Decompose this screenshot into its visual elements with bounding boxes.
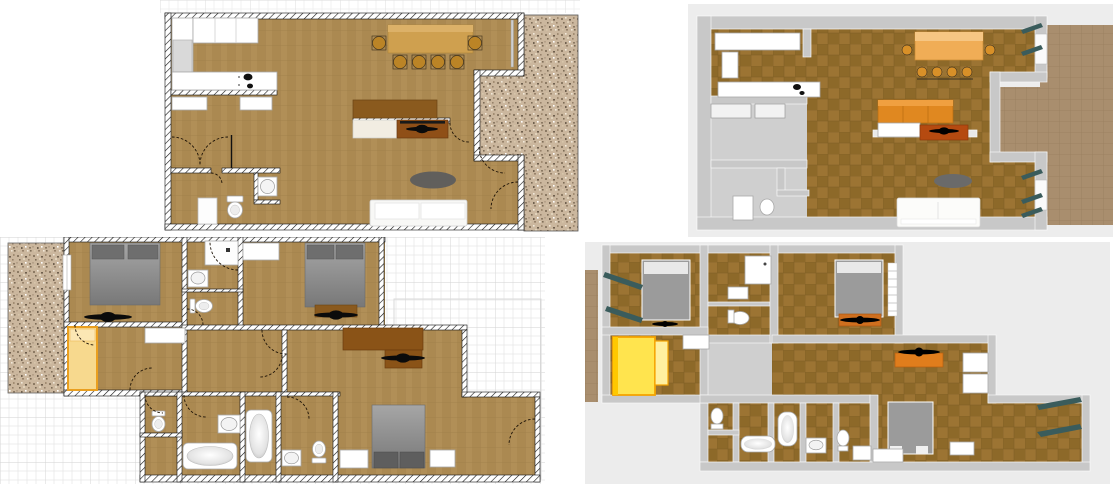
sofa bbox=[897, 198, 980, 227]
footboard bbox=[916, 446, 928, 454]
panel-ground-floor-3d bbox=[685, 0, 1113, 240]
floor-plan-canvas bbox=[0, 0, 1113, 484]
wardrobe-lattice bbox=[888, 263, 897, 316]
corridor-floor-gray bbox=[708, 343, 772, 400]
floor-3d bbox=[711, 29, 1035, 217]
pillow bbox=[644, 262, 688, 274]
washbasin bbox=[188, 270, 208, 287]
washbasin bbox=[728, 287, 748, 299]
rug bbox=[410, 172, 456, 189]
graph-paper-strip bbox=[160, 0, 580, 13]
toilet bbox=[312, 441, 326, 463]
nightstand bbox=[873, 449, 903, 462]
sideboard bbox=[353, 100, 437, 118]
window-rail bbox=[511, 20, 514, 67]
television bbox=[400, 121, 445, 124]
pillow bbox=[307, 245, 334, 259]
shower-tray bbox=[745, 256, 771, 284]
wardrobe-shelf bbox=[683, 335, 709, 349]
refrigerator bbox=[173, 40, 192, 72]
pillow bbox=[336, 245, 363, 259]
panel-ground-floor-2d bbox=[160, 0, 580, 235]
sofa bbox=[370, 200, 467, 226]
panel-upper-floor-3d bbox=[585, 240, 1113, 484]
pillow bbox=[400, 452, 424, 468]
kitchen-cabinets bbox=[193, 18, 258, 43]
wardrobe-shelf bbox=[963, 374, 988, 393]
balcony-3d bbox=[585, 270, 598, 402]
rug bbox=[934, 174, 972, 188]
panel-upper-floor-2d bbox=[0, 237, 545, 484]
cooktop bbox=[793, 84, 801, 90]
bathtub-vertical bbox=[246, 410, 272, 462]
washing-machine bbox=[733, 196, 753, 220]
cabinet bbox=[340, 450, 368, 468]
wardrobe-shelf bbox=[243, 243, 279, 260]
countertop bbox=[718, 82, 820, 97]
double-bed bbox=[642, 260, 690, 320]
double-bed bbox=[888, 402, 933, 454]
washbasin bbox=[806, 438, 826, 453]
single-bed-yellow bbox=[68, 327, 97, 390]
nightstand bbox=[950, 442, 974, 455]
tv-bench-white bbox=[353, 120, 397, 138]
toilet bbox=[190, 299, 213, 313]
toilet bbox=[837, 430, 849, 451]
countertop bbox=[172, 72, 277, 90]
toilet bbox=[227, 196, 243, 218]
double-bed bbox=[372, 405, 425, 468]
kitchen-cabinets bbox=[715, 33, 800, 50]
bathtub bbox=[183, 443, 237, 469]
refrigerator bbox=[722, 52, 738, 78]
double-bed bbox=[835, 260, 883, 317]
cabinet bbox=[853, 446, 871, 460]
bathtub bbox=[741, 436, 775, 452]
balcony-gravel bbox=[8, 243, 64, 393]
bathtub-vertical bbox=[778, 412, 797, 446]
washbasin bbox=[258, 177, 277, 196]
desk bbox=[343, 328, 423, 350]
washbasin bbox=[218, 415, 240, 433]
washing-machine bbox=[198, 198, 217, 224]
pillow bbox=[70, 329, 95, 341]
nightstand bbox=[430, 450, 455, 467]
wardrobe-shelf bbox=[963, 353, 988, 372]
tv-bench-white bbox=[878, 123, 920, 137]
wardrobe-shelf bbox=[145, 328, 185, 343]
double-bed bbox=[90, 243, 160, 305]
double-bed bbox=[305, 243, 365, 307]
pillow bbox=[128, 245, 158, 259]
toilet bbox=[152, 411, 165, 432]
washbasin bbox=[282, 450, 301, 466]
toilet bbox=[711, 408, 723, 429]
pillow bbox=[837, 262, 881, 273]
toilet bbox=[760, 199, 774, 215]
pillow bbox=[374, 452, 398, 468]
pillow bbox=[92, 245, 124, 259]
wc-upper bbox=[190, 299, 213, 313]
